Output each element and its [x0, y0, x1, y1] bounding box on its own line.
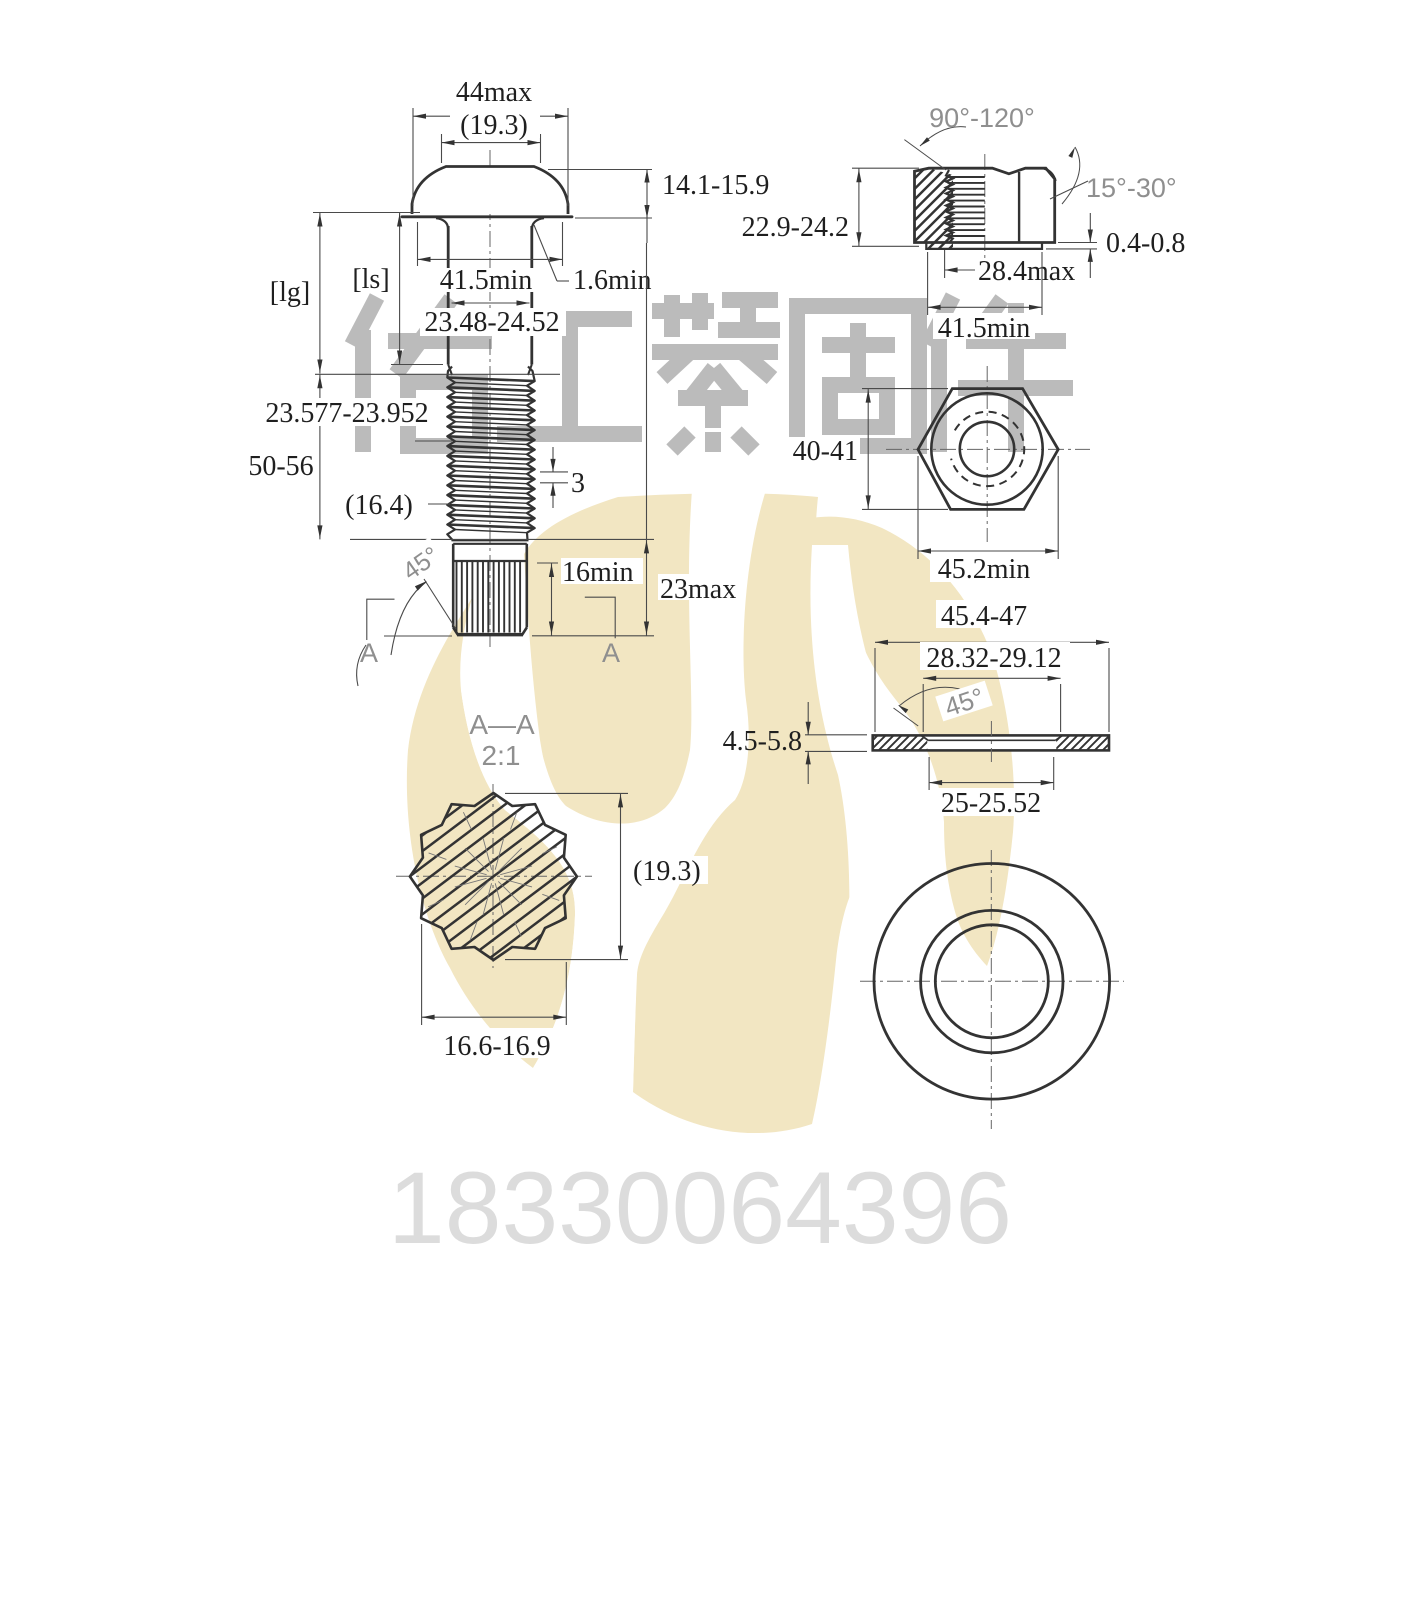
svg-text:16.6-16.9: 16.6-16.9 [443, 1031, 550, 1062]
svg-text:23.577-23.952: 23.577-23.952 [265, 398, 428, 429]
svg-text:25-25.52: 25-25.52 [941, 788, 1041, 819]
svg-text:23max: 23max [660, 574, 736, 605]
svg-text:[ls]: [ls] [352, 264, 389, 295]
svg-text:(19.3): (19.3) [460, 110, 528, 141]
svg-text:0.4-0.8: 0.4-0.8 [1106, 228, 1185, 259]
svg-text:2:1: 2:1 [482, 740, 521, 771]
svg-text:44max: 44max [456, 77, 532, 108]
svg-text:28.4max: 28.4max [978, 256, 1075, 287]
svg-text:4.5-5.8: 4.5-5.8 [723, 726, 802, 757]
svg-text:(19.3): (19.3) [633, 856, 701, 887]
svg-text:3: 3 [571, 468, 585, 499]
svg-text:16min: 16min [562, 557, 634, 588]
svg-text:45.4-47: 45.4-47 [941, 601, 1027, 632]
svg-text:41.5min: 41.5min [938, 313, 1031, 344]
svg-text:A: A [602, 638, 620, 668]
svg-text:A—A: A—A [469, 709, 535, 740]
svg-text:A: A [360, 638, 378, 668]
svg-text:15°-30°: 15°-30° [1086, 173, 1177, 203]
svg-text:45.2min: 45.2min [938, 554, 1031, 585]
svg-text:(16.4): (16.4) [345, 490, 413, 521]
svg-text:50-56: 50-56 [248, 451, 313, 482]
svg-text:[lg]: [lg] [270, 277, 310, 308]
svg-text:90°-120°: 90°-120° [929, 103, 1035, 133]
svg-text:23.48-24.52: 23.48-24.52 [424, 307, 559, 338]
svg-text:18330064396: 18330064396 [388, 1151, 1012, 1265]
svg-text:22.9-24.2: 22.9-24.2 [742, 212, 849, 243]
svg-text:40-41: 40-41 [793, 436, 858, 467]
svg-text:41.5min: 41.5min [440, 265, 533, 296]
svg-text:1.6min: 1.6min [573, 265, 652, 296]
svg-text:28.32-29.12: 28.32-29.12 [926, 643, 1061, 674]
svg-text:14.1-15.9: 14.1-15.9 [662, 170, 769, 201]
